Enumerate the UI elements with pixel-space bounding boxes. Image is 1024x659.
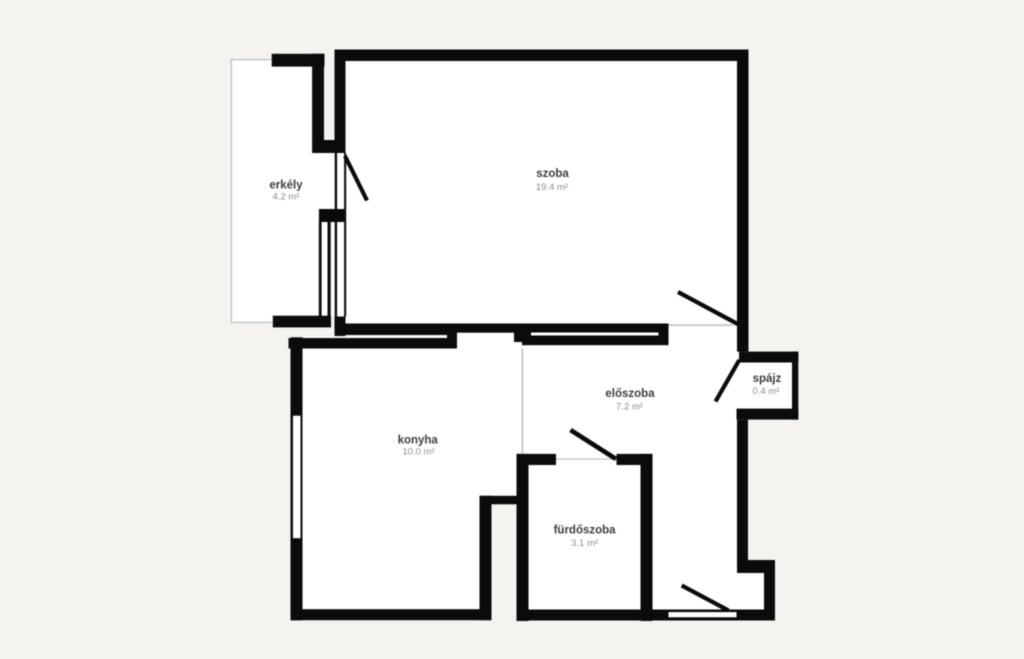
svg-text:10.0 m²: 10.0 m²	[402, 447, 434, 458]
svg-text:4.2 m²: 4.2 m²	[273, 192, 300, 203]
svg-text:fürdőszoba: fürdőszoba	[554, 524, 617, 536]
svg-text:0.4 m²: 0.4 m²	[753, 386, 780, 397]
svg-text:előszoba: előszoba	[605, 388, 655, 400]
svg-text:19.4 m²: 19.4 m²	[536, 182, 568, 193]
svg-text:7.2 m²: 7.2 m²	[616, 402, 643, 413]
svg-text:konyha: konyha	[398, 435, 439, 447]
svg-text:spájz: spájz	[753, 373, 782, 385]
svg-text:3.1 m²: 3.1 m²	[571, 538, 598, 549]
svg-text:szoba: szoba	[536, 168, 569, 180]
svg-text:erkély: erkély	[269, 180, 303, 192]
